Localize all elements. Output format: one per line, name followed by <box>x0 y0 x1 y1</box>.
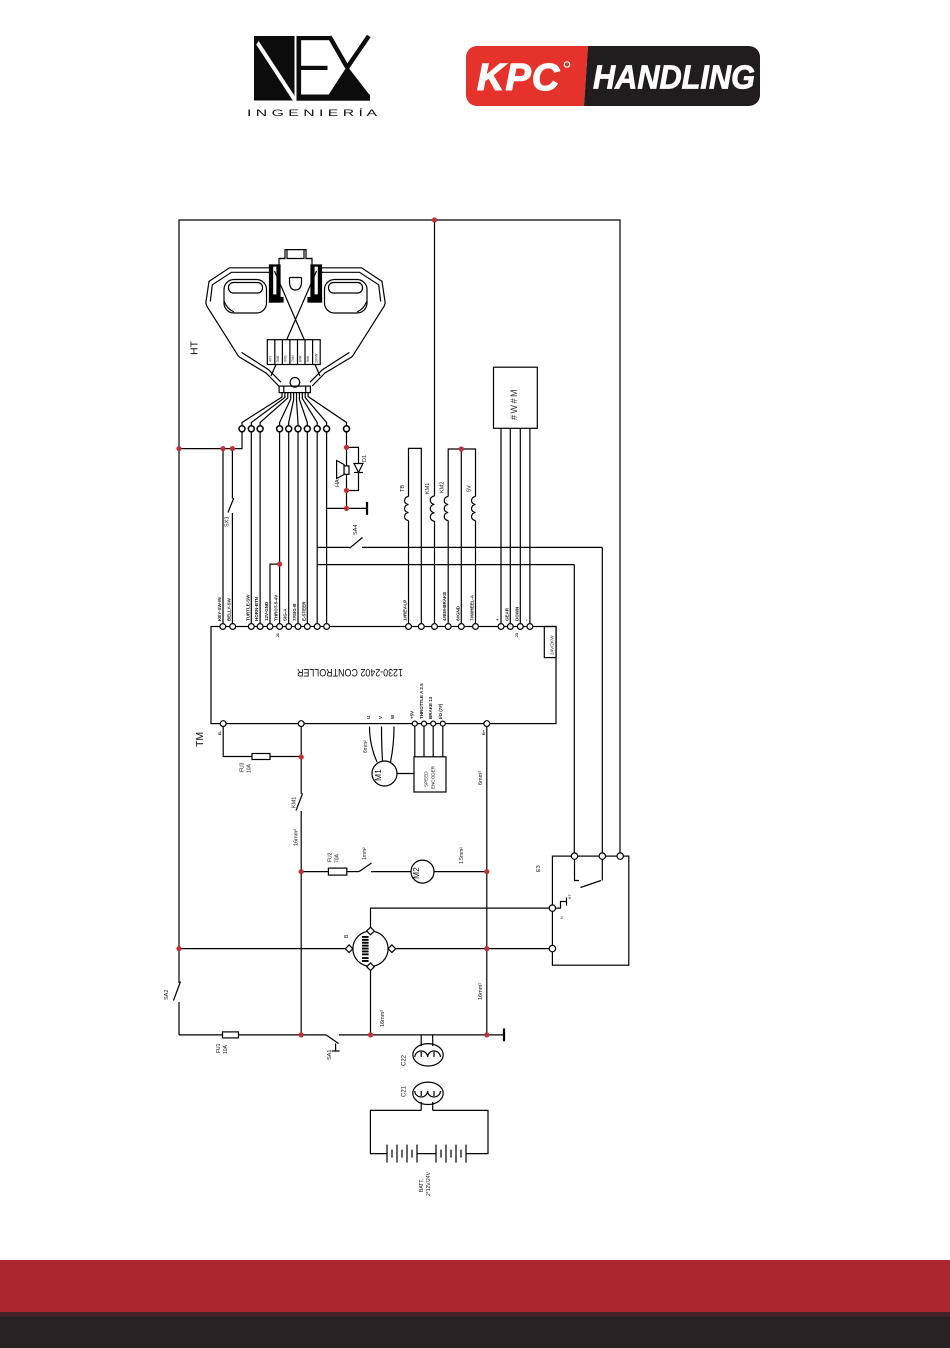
svg-text:-: - <box>524 619 529 621</box>
svg-text:HA: HA <box>335 479 341 487</box>
svg-text:7#N: 7#N <box>291 355 295 362</box>
svg-text:BATT.: BATT. <box>419 1179 425 1192</box>
svg-text:ENCODER: ENCODER <box>431 765 436 789</box>
svg-text:KPC: KPC <box>477 57 560 99</box>
svg-text:2*12V/24V: 2*12V/24V <box>426 1171 432 1196</box>
svg-text:FU2: FU2 <box>328 852 334 862</box>
svg-text:FU1: FU1 <box>216 1043 222 1053</box>
svg-text:+5V: +5V <box>410 711 415 719</box>
svg-text:I N G E N I E R Í A: I N G E N I E R Í A <box>247 108 378 119</box>
svg-text:10A: 10A <box>223 1044 229 1054</box>
svg-text:D1: D1 <box>362 455 368 462</box>
svg-text:B-: B- <box>217 730 222 735</box>
svg-text:6#GND: 6#GND <box>455 605 460 621</box>
svg-text:SX3: SX3 <box>225 517 231 527</box>
svg-text:1mm²: 1mm² <box>362 847 368 860</box>
svg-text:SA1: SA1 <box>327 1050 333 1060</box>
svg-text:10A: 10A <box>247 763 253 773</box>
svg-text:70A: 70A <box>335 853 341 863</box>
svg-text:I/O (7#): I/O (7#) <box>438 703 443 719</box>
svg-text:THROT-5-4V: THROT-5-4V <box>274 595 279 621</box>
svg-text:GEAR: GEAR <box>504 607 509 621</box>
svg-text:4#Y: 4#Y <box>269 355 273 362</box>
svg-text:16mm²: 16mm² <box>294 829 300 846</box>
svg-text:16mm²: 16mm² <box>478 983 484 1000</box>
svg-text:KM1: KM1 <box>425 483 431 494</box>
svg-text:E3: E3 <box>536 865 542 872</box>
svg-text:M2: M2 <box>411 867 421 879</box>
svg-text:6mm²: 6mm² <box>363 740 369 753</box>
svg-text:TURTLE-SW: TURTLE-SW <box>245 594 250 621</box>
svg-text:1.5mm²: 1.5mm² <box>459 847 465 864</box>
svg-text:J1: J1 <box>275 632 280 637</box>
svg-text:C22: C22 <box>402 1054 408 1066</box>
svg-text:V: V <box>378 716 383 719</box>
svg-text:DOWN: DOWN <box>514 607 519 621</box>
svg-text:W: W <box>390 714 395 719</box>
svg-text:9#K: 9#K <box>306 355 310 362</box>
svg-text:B+: B+ <box>481 729 486 735</box>
svg-text:KT: KT <box>568 893 572 899</box>
svg-text:8#R: 8#R <box>299 355 303 362</box>
svg-text:5#B: 5#B <box>276 355 280 362</box>
svg-text:BRAKE 13: BRAKE 13 <box>428 696 433 719</box>
svg-text:5V: 5V <box>467 485 473 492</box>
svg-text:E-STEER: E-STEER <box>301 601 306 621</box>
svg-text:HORN-BTN: HORN-BTN <box>254 597 259 621</box>
svg-text:6#G: 6#G <box>284 355 288 362</box>
svg-text:16mm²: 16mm² <box>380 1010 386 1027</box>
svg-text:C21: C21 <box>402 1085 408 1097</box>
svg-text:KEY-SW-IN: KEY-SW-IN <box>217 597 222 621</box>
svg-text:KM1: KM1 <box>292 797 298 808</box>
svg-text:B: B <box>344 934 350 938</box>
svg-text:7#WHEEL-A: 7#WHEEL-A <box>470 594 475 621</box>
svg-text:SPEED: SPEED <box>424 771 429 787</box>
svg-text:M1: M1 <box>373 769 383 781</box>
svg-text:N: N <box>560 916 564 919</box>
svg-text:U: U <box>366 716 371 719</box>
svg-text:12V-GND: 12V-GND <box>264 601 269 621</box>
svg-text:FU3: FU3 <box>240 762 246 772</box>
svg-text:THROTTLE A 2.5: THROTTLE A 2.5 <box>419 683 424 719</box>
svg-text:7#SIG-B: 7#SIG-B <box>292 603 297 621</box>
svg-text:HANDLING: HANDLING <box>593 59 755 96</box>
svg-text:4#EM-BRAKE: 4#EM-BRAKE <box>442 592 447 621</box>
svg-text:TM: TM <box>194 732 206 747</box>
svg-text:1230-2402 CONTROLLER: 1230-2402 CONTROLLER <box>297 666 403 678</box>
svg-text:24V/2KW: 24V/2KW <box>550 635 555 655</box>
svg-text:J3: J3 <box>514 632 519 637</box>
svg-text:SIG-A: SIG-A <box>283 608 288 621</box>
svg-text:10#W: 10#W <box>315 353 319 363</box>
svg-text:KM2: KM2 <box>440 482 446 493</box>
svg-text:TB: TB <box>400 485 406 492</box>
svg-text:6mm²: 6mm² <box>478 771 484 785</box>
svg-text:SA4: SA4 <box>353 525 359 535</box>
svg-text:SA2: SA2 <box>164 990 170 1000</box>
svg-text:1#REV-LP: 1#REV-LP <box>403 600 408 621</box>
svg-text:#W#M: #W#M <box>509 388 519 420</box>
svg-text:+: + <box>495 618 500 621</box>
svg-text:HT: HT <box>189 340 201 355</box>
svg-text:BELLY-SW: BELLY-SW <box>227 597 232 621</box>
